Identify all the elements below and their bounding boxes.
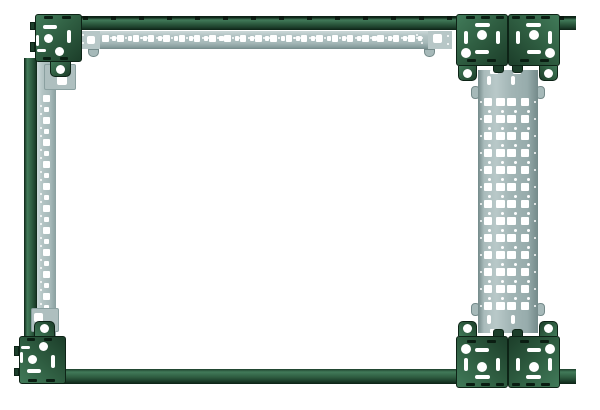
bracket-bolt-hole bbox=[461, 48, 471, 58]
bracket-side-tab bbox=[14, 346, 19, 356]
bracket-edge-slot bbox=[520, 59, 529, 62]
corner-bracket-pair-member bbox=[508, 14, 560, 66]
bracket-edge-slot bbox=[44, 16, 53, 19]
bracket-slot bbox=[496, 358, 500, 371]
bracket-edge-slot bbox=[526, 16, 535, 19]
bracket-slot bbox=[43, 25, 57, 29]
bracket-edge-slot bbox=[46, 379, 55, 382]
bracket-slot bbox=[475, 23, 490, 27]
bracket-edge-slot bbox=[540, 59, 549, 62]
bracket-edge-slot bbox=[487, 59, 496, 62]
bracket-bolt-hole bbox=[477, 362, 487, 372]
tab-bolt-hole bbox=[544, 324, 553, 333]
bracket-edge-slot bbox=[520, 340, 529, 343]
bracket-edge-slot bbox=[60, 57, 68, 60]
bracket-edge-slot bbox=[28, 379, 37, 382]
corner-bracket-small bbox=[35, 14, 82, 62]
bracket-edge-slot bbox=[27, 338, 35, 341]
bracket-slot bbox=[475, 348, 489, 352]
bracket-slot bbox=[496, 31, 500, 44]
bracket-slot bbox=[20, 352, 23, 363]
bracket-small-tab bbox=[512, 329, 523, 336]
bracket-bolt-hole bbox=[461, 344, 471, 354]
bracket-edge-slot bbox=[512, 383, 520, 386]
bracket-slot bbox=[464, 358, 468, 371]
bracket-bolt-hole bbox=[477, 30, 487, 40]
bracket-slot bbox=[527, 50, 541, 54]
tab-bolt-hole bbox=[544, 69, 553, 78]
bracket-slot bbox=[37, 49, 46, 52]
corner-bracket-small bbox=[19, 336, 66, 384]
bracket-edge-slot bbox=[62, 16, 71, 19]
bracket-slot bbox=[527, 348, 541, 352]
bracket-edge-slot bbox=[481, 16, 490, 19]
bracket-bolt-hole bbox=[529, 30, 539, 40]
tab-bolt-hole bbox=[56, 65, 65, 74]
rack-frame-render bbox=[0, 0, 600, 410]
corner-bracket-pair-member bbox=[508, 336, 560, 388]
bracket-edge-slot bbox=[467, 340, 476, 343]
bracket-edge-slot bbox=[496, 383, 504, 386]
bracket-edge-slot bbox=[540, 340, 549, 343]
bracket-edge-slot bbox=[541, 383, 550, 386]
bracket-bolt-hole bbox=[44, 34, 53, 43]
bracket-slot bbox=[464, 31, 468, 44]
bracket-slot bbox=[21, 346, 30, 349]
bracket-edge-slot bbox=[512, 16, 520, 19]
bracket-slot bbox=[548, 31, 552, 44]
bracket-side-tab bbox=[30, 42, 35, 52]
corner-bracket-pair-member bbox=[456, 336, 508, 388]
bracket-slot bbox=[475, 375, 490, 379]
bracket-bolt-hole bbox=[529, 362, 539, 372]
tab-bolt-hole bbox=[40, 324, 49, 333]
bracket-edge-slot bbox=[526, 383, 535, 386]
bracket-edge-slot bbox=[466, 16, 475, 19]
bracket-edge-slot bbox=[496, 16, 504, 19]
bracket-small-tab bbox=[493, 66, 504, 73]
corner-brackets-layer bbox=[0, 0, 600, 410]
bracket-slot bbox=[526, 23, 541, 27]
bracket-slot bbox=[475, 50, 489, 54]
bracket-slot bbox=[67, 30, 71, 43]
bracket-slot bbox=[27, 369, 41, 373]
bracket-bolt-hole bbox=[39, 342, 48, 351]
bracket-edge-slot bbox=[487, 340, 496, 343]
bracket-slot bbox=[51, 355, 55, 368]
bracket-slot bbox=[516, 358, 520, 371]
bracket-edge-slot bbox=[481, 383, 490, 386]
bracket-small-tab bbox=[512, 66, 523, 73]
bracket-bolt-hole bbox=[545, 344, 555, 354]
tab-bolt-hole bbox=[463, 69, 472, 78]
bracket-slot bbox=[516, 31, 520, 44]
bracket-slot bbox=[548, 358, 552, 371]
bracket-edge-slot bbox=[466, 383, 475, 386]
bracket-edge-slot bbox=[541, 16, 550, 19]
bracket-bolt-hole bbox=[28, 355, 37, 364]
bracket-edge-slot bbox=[467, 59, 476, 62]
bracket-slot bbox=[526, 375, 541, 379]
corner-bracket-pair-member bbox=[456, 14, 508, 66]
bracket-side-tab bbox=[30, 22, 35, 30]
bracket-bolt-hole bbox=[545, 48, 555, 58]
bracket-side-tab bbox=[14, 368, 19, 376]
bracket-slot bbox=[36, 35, 39, 46]
bracket-small-tab bbox=[493, 329, 504, 336]
bracket-edge-slot bbox=[43, 57, 51, 60]
tab-bolt-hole bbox=[463, 324, 472, 333]
bracket-edge-slot bbox=[44, 338, 52, 341]
bracket-bolt-hole bbox=[55, 47, 64, 56]
